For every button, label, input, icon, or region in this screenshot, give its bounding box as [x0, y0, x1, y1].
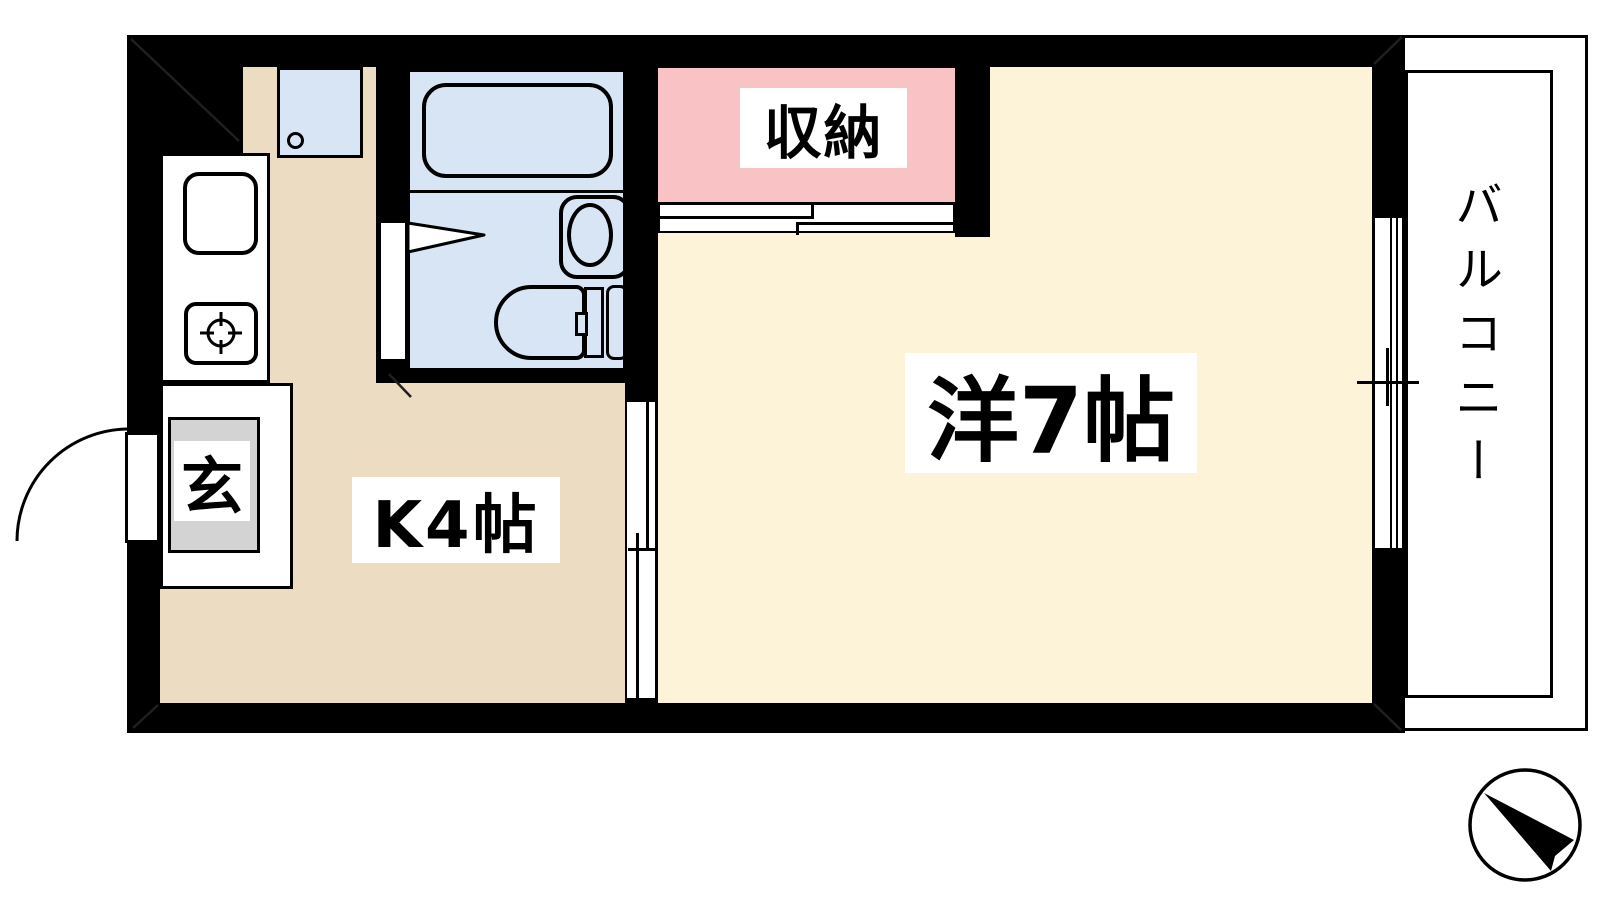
compass-icon — [1470, 770, 1580, 880]
overlay-graphics — [0, 0, 1600, 900]
wall-miter-lines — [131, 37, 1402, 730]
bathroom-door-swing-icon — [408, 223, 484, 252]
burner-icon — [200, 312, 242, 354]
door-swing-arc — [17, 429, 129, 541]
floorplan-canvas: 収納 洋7帖 K4帖 玄 バルコニー — [0, 0, 1600, 900]
